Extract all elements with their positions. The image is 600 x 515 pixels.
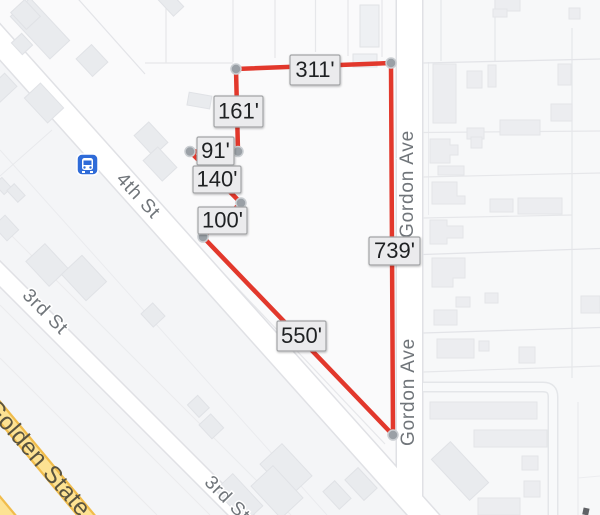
svg-text:161': 161' — [218, 99, 259, 124]
svg-text:311': 311' — [295, 57, 334, 82]
svg-text:Gordon Ave: Gordon Ave — [398, 338, 419, 446]
svg-text:739': 739' — [374, 238, 415, 263]
svg-text:140': 140' — [197, 167, 238, 192]
svg-text:91': 91' — [201, 138, 230, 163]
svg-text:Gordon Ave: Gordon Ave — [397, 130, 418, 238]
svg-text:100': 100' — [202, 208, 243, 233]
svg-text:550': 550' — [281, 323, 322, 348]
